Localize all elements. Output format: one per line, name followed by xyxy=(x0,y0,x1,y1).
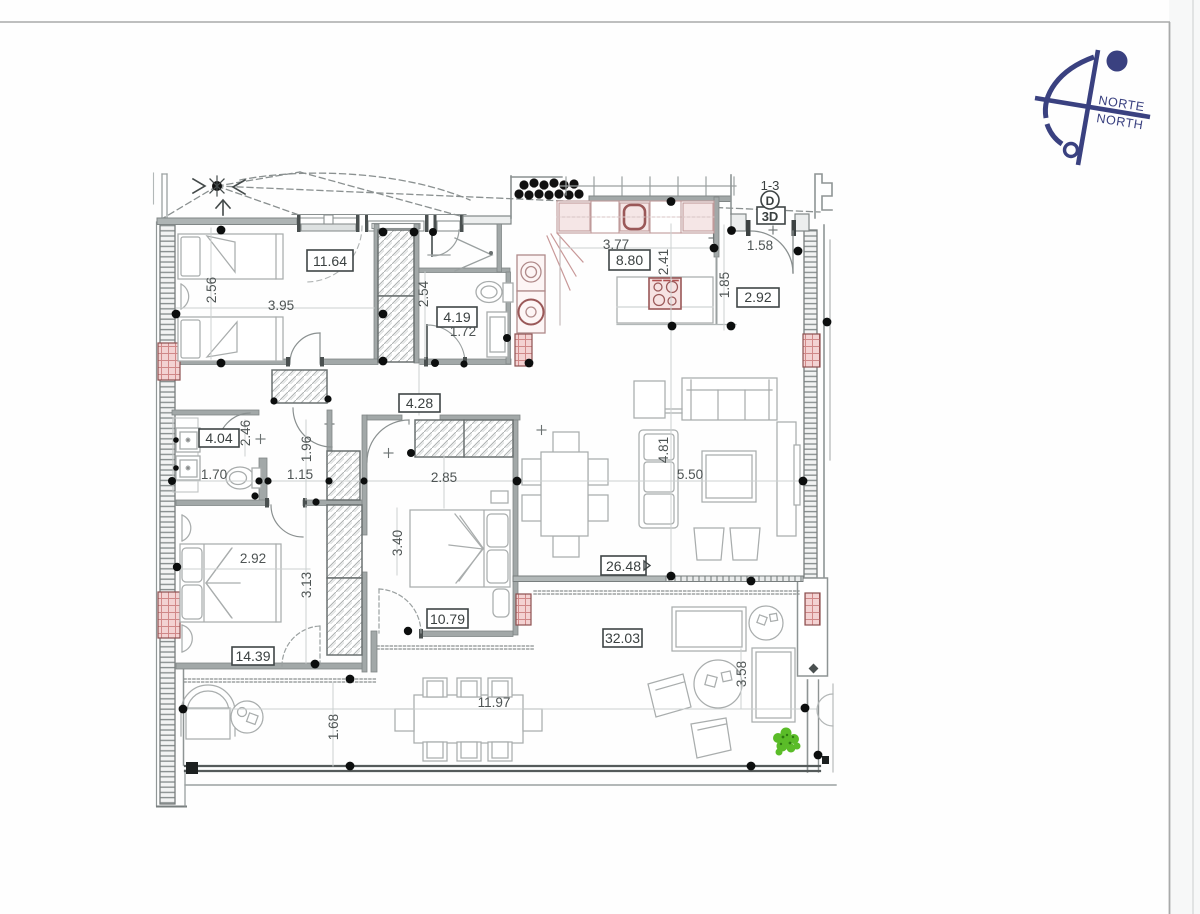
svg-text:11.64: 11.64 xyxy=(313,253,347,269)
svg-text:1.58: 1.58 xyxy=(747,238,773,253)
svg-text:1-3: 1-3 xyxy=(761,178,780,193)
svg-text:1.96: 1.96 xyxy=(299,436,314,462)
svg-text:1.15: 1.15 xyxy=(287,467,313,482)
svg-text:1.70: 1.70 xyxy=(201,467,227,482)
svg-text:14.39: 14.39 xyxy=(235,648,270,664)
svg-text:D: D xyxy=(766,194,775,208)
svg-text:3.40: 3.40 xyxy=(390,530,405,556)
svg-text:32.03: 32.03 xyxy=(605,630,640,646)
svg-text:3D: 3D xyxy=(762,209,779,224)
svg-text:10.79: 10.79 xyxy=(430,611,465,627)
svg-text:2.41: 2.41 xyxy=(656,249,671,275)
svg-text:11.97: 11.97 xyxy=(478,695,511,710)
svg-text:3.13: 3.13 xyxy=(299,572,314,598)
svg-text:2.92: 2.92 xyxy=(744,289,771,305)
svg-text:1.68: 1.68 xyxy=(326,714,341,740)
svg-text:4.28: 4.28 xyxy=(406,395,433,411)
svg-text:4.19: 4.19 xyxy=(443,309,470,325)
svg-text:26.48: 26.48 xyxy=(606,558,641,574)
svg-text:3.95: 3.95 xyxy=(268,298,294,313)
svg-text:2.46: 2.46 xyxy=(238,420,253,446)
svg-text:3.77: 3.77 xyxy=(603,237,629,252)
svg-text:2.56: 2.56 xyxy=(204,277,219,303)
svg-text:8.80: 8.80 xyxy=(616,252,643,268)
svg-text:1.72: 1.72 xyxy=(450,324,476,339)
svg-text:2.54: 2.54 xyxy=(416,280,431,307)
svg-text:3.58: 3.58 xyxy=(734,661,749,687)
svg-text:5.50: 5.50 xyxy=(677,467,703,482)
svg-text:4.81: 4.81 xyxy=(656,437,671,463)
svg-text:4.04: 4.04 xyxy=(205,430,232,446)
svg-text:2.92: 2.92 xyxy=(240,551,266,566)
svg-text:1.85: 1.85 xyxy=(717,272,732,298)
svg-text:2.85: 2.85 xyxy=(431,470,457,485)
